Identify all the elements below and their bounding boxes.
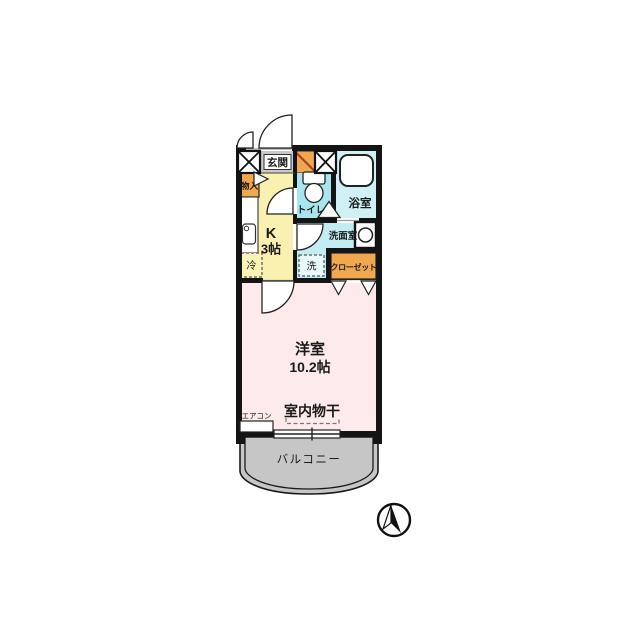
refrigerator-label: 冷 bbox=[247, 259, 257, 272]
toilet-bowl bbox=[305, 184, 323, 203]
entrance-door-main bbox=[259, 115, 292, 148]
window-south bbox=[274, 428, 340, 441]
indoor-drying-label: 室内物干 bbox=[284, 403, 340, 419]
main-room-label: 洋室 bbox=[295, 340, 325, 358]
bathtub bbox=[340, 155, 373, 186]
pipe-space-left bbox=[238, 151, 260, 173]
floor-plan-canvas: 玄関 物入 K 3帖 冷 トイレ 浴室 洗面室 洗 クローゼット 洋室 10.2… bbox=[0, 0, 640, 640]
entrance-door-child bbox=[237, 132, 253, 148]
bathroom-label: 浴室 bbox=[349, 196, 372, 210]
storage-label: 物入 bbox=[241, 181, 259, 191]
kitchen-size-label: 3帖 bbox=[261, 242, 281, 257]
floor-plan-page: 玄関 物入 K 3帖 冷 トイレ 浴室 洗面室 洗 クローゼット 洋室 10.2… bbox=[0, 0, 640, 640]
kitchen-label: K bbox=[266, 226, 277, 242]
pipe-space-right bbox=[315, 151, 336, 173]
north-arrow-icon bbox=[378, 504, 410, 536]
washer-label: 洗 bbox=[307, 261, 317, 273]
aircon-unit-box bbox=[240, 421, 273, 432]
entrance-label: 玄関 bbox=[267, 156, 288, 169]
kitchen-faucet bbox=[244, 226, 248, 230]
aircon-label: エアコン bbox=[242, 412, 272, 421]
toilet-label: トイレ bbox=[297, 205, 326, 216]
closet-label: クローゼット bbox=[330, 262, 376, 272]
washbasin-bowl bbox=[359, 228, 373, 242]
balcony-label: バルコニー bbox=[277, 453, 342, 466]
main-room-size-label: 10.2帖 bbox=[289, 359, 330, 375]
washroom-label: 洗面室 bbox=[329, 230, 358, 242]
